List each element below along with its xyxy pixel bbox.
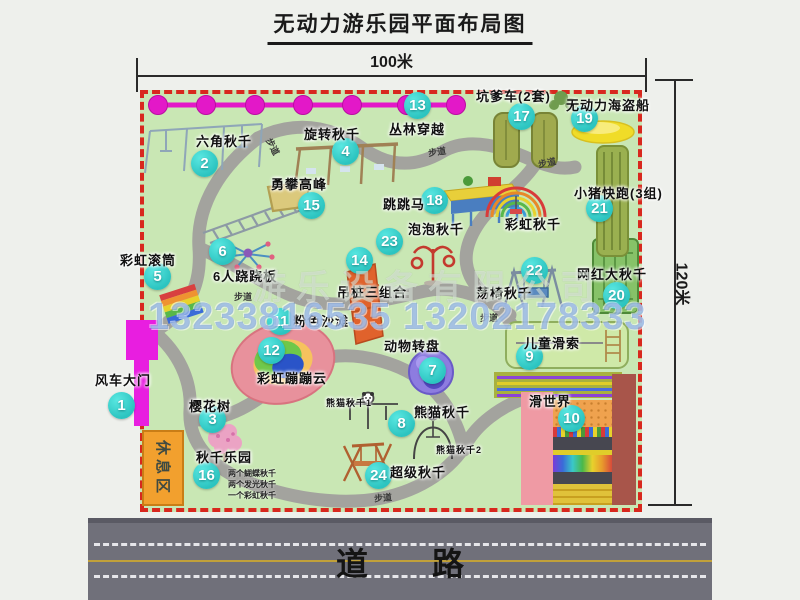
windmill-gate-icon bbox=[134, 360, 149, 426]
dimension-tick bbox=[645, 58, 647, 92]
dimension-tick bbox=[655, 79, 693, 81]
dimension-tick bbox=[136, 58, 138, 92]
slide-pink-band bbox=[521, 392, 553, 505]
rest-area-label: 休息区 bbox=[153, 439, 174, 496]
width-dimension-label: 100米 bbox=[137, 48, 646, 72]
road-label: 道路 bbox=[88, 523, 712, 600]
width-dimension-line bbox=[137, 75, 646, 77]
dimension-tick bbox=[648, 504, 692, 506]
slide-lanes bbox=[494, 372, 622, 398]
height-dimension-label: 120米 bbox=[671, 263, 695, 306]
rest-area: 休息区 bbox=[142, 430, 184, 506]
slide-band bbox=[553, 437, 612, 450]
slide-band bbox=[553, 484, 612, 505]
slide-band bbox=[553, 400, 612, 427]
page-title: 无动力游乐园平面布局图 bbox=[268, 8, 533, 45]
slide-tower bbox=[612, 374, 636, 505]
slide-band bbox=[553, 472, 612, 484]
slide-world-area bbox=[494, 372, 636, 505]
slide-rainbow-band bbox=[553, 455, 612, 472]
road: 道路 bbox=[88, 518, 712, 600]
slide-band bbox=[553, 427, 612, 437]
windmill-gate-icon bbox=[126, 320, 158, 360]
park-layout-plan: 无动力游乐园平面布局图 100米 120米 bbox=[0, 0, 800, 600]
badge-1: 1 bbox=[108, 392, 135, 419]
